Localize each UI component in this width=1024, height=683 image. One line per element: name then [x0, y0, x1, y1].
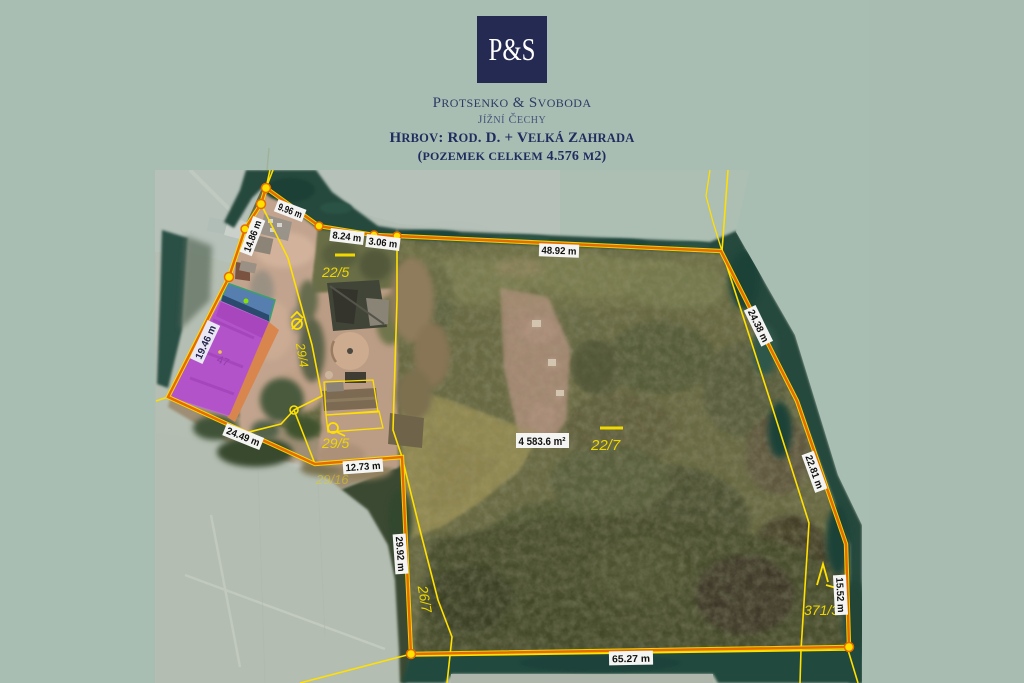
- svg-text:HRBOV: ROD. D. + VELKÁ ZAHRADA: HRBOV: ROD. D. + VELKÁ ZAHRADA: [390, 130, 635, 146]
- svg-text:PROTSENKO & SVOBODA: PROTSENKO & SVOBODA: [433, 95, 592, 111]
- svg-text:22/5: 22/5: [321, 264, 349, 280]
- svg-text:15.52 m: 15.52 m: [833, 577, 846, 613]
- svg-text:371/3: 371/3: [804, 602, 839, 618]
- svg-text:4 583.6 m²: 4 583.6 m²: [519, 436, 566, 448]
- svg-text:65.27 m: 65.27 m: [612, 654, 650, 666]
- svg-text:29/5: 29/5: [321, 435, 349, 451]
- svg-text:(POZEMEK CELKEM 4.576 M2): (POZEMEK CELKEM 4.576 M2): [418, 149, 607, 164]
- svg-text:48.92 m: 48.92 m: [541, 245, 576, 257]
- svg-text:JÍŽNÍ ČECHY: JÍŽNÍ ČECHY: [478, 112, 546, 126]
- svg-text:22/7: 22/7: [590, 437, 621, 454]
- svg-text:P&S: P&S: [489, 31, 536, 67]
